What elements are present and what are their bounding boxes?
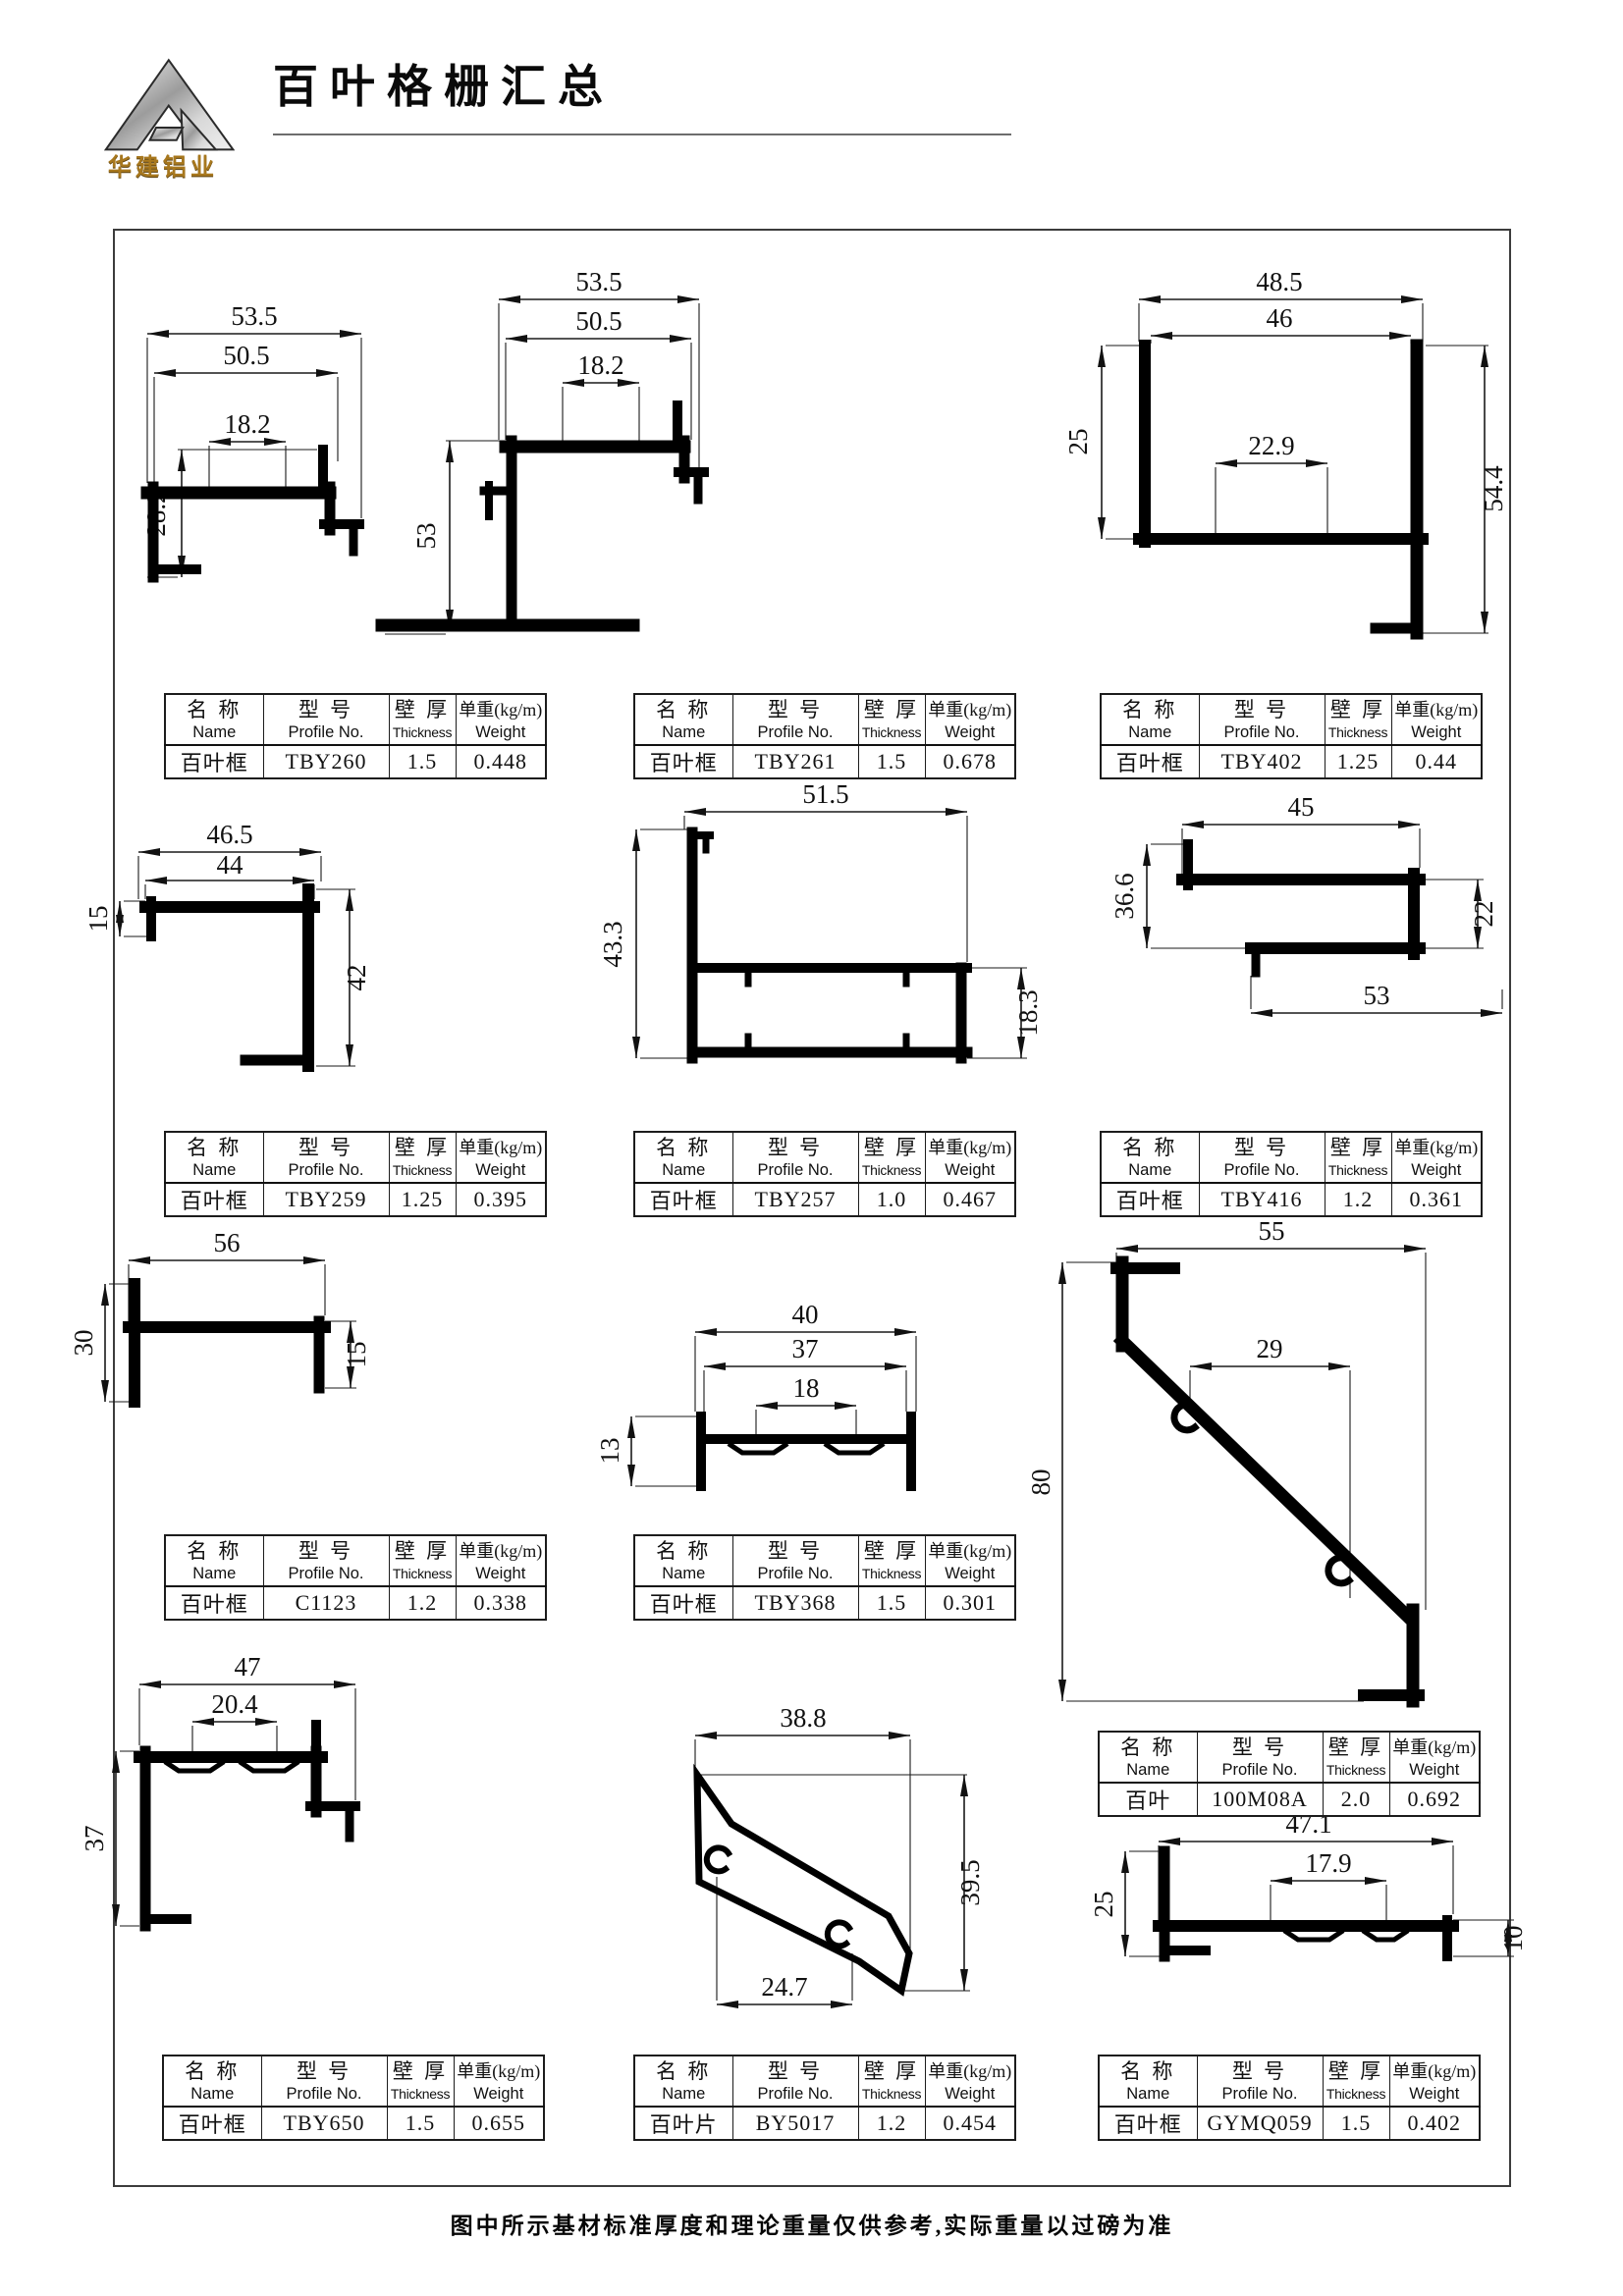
col-header-weight: 单重(kg/m)Weight	[1391, 1132, 1482, 1183]
drawing-sheet: { "header": { "logo_text": "华建铝业", "titl…	[0, 0, 1623, 2296]
dimension-label: 40	[792, 1300, 819, 1329]
profile-name: 百叶框	[165, 1586, 263, 1620]
dimension-label: 53	[411, 523, 441, 550]
col-header-thickness: 壁 厚Thickness	[1325, 1132, 1391, 1183]
col-header-thickness: 壁 厚Thickness	[1323, 1732, 1389, 1783]
col-header-name: 名 称Name	[165, 694, 263, 745]
dimension-label: 44	[217, 850, 244, 880]
company-name: 华建铝业	[75, 147, 251, 182]
profile-model: TBY650	[261, 2107, 387, 2140]
dimension-label: 50.5	[223, 341, 269, 370]
col-header-name: 名 称Name	[634, 2056, 732, 2107]
dimension-label: 48.5	[1256, 267, 1302, 296]
profile-table-TBY261: 名 称Name 型 号Profile No. 壁 厚Thickness 单重(k…	[633, 693, 1016, 779]
dimension-label: 46	[1267, 303, 1293, 333]
profile-name: 百叶片	[634, 2107, 732, 2140]
profile-model: TBY416	[1199, 1183, 1325, 1216]
dimension-label: 56	[214, 1228, 241, 1257]
profile-table-TBY259: 名 称Name 型 号Profile No. 壁 厚Thickness 单重(k…	[164, 1131, 547, 1217]
col-header-name: 名 称Name	[165, 1535, 263, 1586]
profile-name: 百叶框	[165, 1183, 263, 1216]
profile-weight: 0.361	[1391, 1183, 1482, 1216]
dimension-label: 17.9	[1305, 1848, 1351, 1878]
dimension-lines: 47.1 17.9 25 10	[1089, 1809, 1528, 1956]
profile-outline	[147, 450, 359, 577]
profile-table-C1123: 名 称Name 型 号Profile No. 壁 厚Thickness 单重(k…	[164, 1534, 547, 1621]
col-header-name: 名 称Name	[1101, 694, 1199, 745]
col-header-weight: 单重(kg/m)Weight	[456, 1535, 546, 1586]
profile-name: 百叶	[1099, 1783, 1197, 1816]
profile-drawing-TBY368: 40 37 18 13	[599, 1310, 972, 1502]
dimension-label: 13	[595, 1438, 624, 1465]
profile-model: BY5017	[732, 2107, 858, 2140]
col-header-weight: 单重(kg/m)Weight	[1389, 2056, 1480, 2107]
profile-drawing-TBY402: 48.5 46 25 22.9 54.4	[1060, 255, 1532, 648]
profile-table-100M08A: 名 称Name 型 号Profile No. 壁 厚Thickness 单重(k…	[1098, 1731, 1481, 1817]
profile-drawing-TBY261: 53.5 50.5 18.2 53	[378, 260, 1046, 653]
page-title: 百叶格栅汇总	[273, 51, 615, 116]
profile-thickness: 1.2	[858, 2107, 925, 2140]
profile-weight: 0.655	[454, 2107, 544, 2140]
profile-table-TBY260: 名 称Name 型 号Profile No. 壁 厚Thickness 单重(k…	[164, 693, 547, 779]
dimension-label: 18.2	[577, 350, 623, 380]
dimension-lines: 46.5 44 15 42	[83, 820, 371, 1066]
profile-outline	[1139, 346, 1423, 633]
col-header-name: 名 称Name	[1101, 1132, 1199, 1183]
col-header-name: 名 称Name	[634, 1132, 732, 1183]
profile-outline	[1182, 844, 1420, 973]
profile-drawing-BY5017: 38.8 39.5 24.7	[569, 1713, 992, 2037]
profile-weight: 0.692	[1389, 1783, 1480, 1816]
title-underline	[273, 133, 1011, 135]
dimension-label: 15	[83, 906, 113, 933]
col-header-name: 名 称Name	[1099, 1732, 1197, 1783]
profile-drawing-TBY259: 46.5 44 15 42	[93, 825, 398, 1119]
profile-outline	[382, 405, 704, 625]
col-header-model: 型 号Profile No.	[1199, 1132, 1325, 1183]
profile-drawing-TBY416: 45 36.6 22 53	[1060, 805, 1532, 1090]
profile-name: 百叶框	[634, 745, 732, 778]
profile-drawing-C1123: 56 30 15	[93, 1227, 407, 1453]
col-header-model: 型 号Profile No.	[263, 694, 389, 745]
col-header-weight: 单重(kg/m)Weight	[454, 2056, 544, 2107]
profile-name: 百叶框	[1099, 2107, 1197, 2140]
col-header-thickness: 壁 厚Thickness	[858, 1132, 925, 1183]
profile-weight: 0.338	[456, 1586, 546, 1620]
profile-thickness: 1.25	[1325, 745, 1391, 778]
dimension-label: 20.4	[211, 1689, 258, 1719]
profile-outline	[697, 1775, 909, 1991]
dimension-label: 50.5	[575, 306, 622, 336]
profile-name: 百叶框	[1101, 745, 1199, 778]
profile-drawing-GYMQ059: 47.1 17.9 25 10	[1060, 1821, 1532, 1998]
col-header-name: 名 称Name	[165, 1132, 263, 1183]
dimension-lines: 51.5 43.3 18.3	[598, 779, 1043, 1058]
dimension-label: 30	[69, 1330, 98, 1357]
profile-weight: 0.44	[1391, 745, 1482, 778]
col-header-model: 型 号Profile No.	[732, 1535, 858, 1586]
profile-drawing-100M08A: 55 29 80	[1046, 1227, 1527, 1718]
profile-model: 100M08A	[1197, 1783, 1323, 1816]
dimension-label: 18	[793, 1373, 820, 1403]
profile-weight: 0.402	[1389, 2107, 1480, 2140]
dimension-label: 22.9	[1248, 431, 1294, 460]
dimension-label: 24.7	[761, 1972, 807, 2002]
profile-name: 百叶框	[634, 1586, 732, 1620]
profile-model: TBY261	[732, 745, 858, 778]
profile-outline	[701, 1416, 911, 1486]
col-header-model: 型 号Profile No.	[1199, 694, 1325, 745]
profile-table-TBY257: 名 称Name 型 号Profile No. 壁 厚Thickness 单重(k…	[633, 1131, 1016, 1217]
dimension-label: 55	[1259, 1216, 1285, 1246]
col-header-weight: 单重(kg/m)Weight	[925, 1535, 1015, 1586]
col-header-model: 型 号Profile No.	[732, 1132, 858, 1183]
col-header-model: 型 号Profile No.	[263, 1132, 389, 1183]
profile-thickness: 1.5	[387, 2107, 454, 2140]
col-header-weight: 单重(kg/m)Weight	[456, 694, 546, 745]
col-header-thickness: 壁 厚Thickness	[389, 1535, 456, 1586]
profile-model: TBY402	[1199, 745, 1325, 778]
dimension-label: 18.3	[1013, 989, 1043, 1036]
profile-outline	[1116, 1262, 1419, 1701]
dimension-label: 53.5	[575, 267, 622, 296]
dimension-lines: 53.5 50.5 18.2 28.2	[141, 301, 361, 577]
profile-model: TBY260	[263, 745, 389, 778]
col-header-weight: 单重(kg/m)Weight	[456, 1132, 546, 1183]
profile-weight: 0.454	[925, 2107, 1015, 2140]
profile-name: 百叶框	[165, 745, 263, 778]
profile-drawing-TBY650: 47 20.4 37	[93, 1664, 417, 1949]
profile-model: GYMQ059	[1197, 2107, 1323, 2140]
dimension-label: 37	[80, 1826, 109, 1852]
dimension-label: 25	[1063, 429, 1093, 455]
col-header-model: 型 号Profile No.	[1197, 2056, 1323, 2107]
dimension-label: 39.5	[955, 1859, 985, 1905]
dimension-lines: 48.5 46 25 22.9 54.4	[1063, 267, 1508, 633]
profile-table-TBY650: 名 称Name 型 号Profile No. 壁 厚Thickness 单重(k…	[162, 2055, 545, 2141]
profile-weight: 0.395	[456, 1183, 546, 1216]
profile-thickness: 2.0	[1323, 1783, 1389, 1816]
col-header-model: 型 号Profile No.	[263, 1535, 389, 1586]
profile-outline	[145, 889, 314, 1066]
dimension-lines: 40 37 18 13	[595, 1300, 916, 1486]
dimension-label: 37	[792, 1334, 819, 1363]
dimension-label: 25	[1089, 1892, 1118, 1918]
col-header-weight: 单重(kg/m)Weight	[1391, 694, 1482, 745]
profile-name: 百叶框	[1101, 1183, 1199, 1216]
profile-weight: 0.448	[456, 745, 546, 778]
profile-table-TBY368: 名 称Name 型 号Profile No. 壁 厚Thickness 单重(k…	[633, 1534, 1016, 1621]
profile-name: 百叶框	[163, 2107, 261, 2140]
col-header-name: 名 称Name	[634, 1535, 732, 1586]
col-header-model: 型 号Profile No.	[732, 694, 858, 745]
col-header-thickness: 壁 厚Thickness	[858, 694, 925, 745]
col-header-weight: 单重(kg/m)Weight	[1389, 1732, 1480, 1783]
dimension-lines: 45 36.6 22 53	[1109, 792, 1502, 1013]
dimension-label: 15	[342, 1342, 371, 1368]
profile-model: C1123	[263, 1586, 389, 1620]
dimension-label: 45	[1288, 792, 1315, 822]
footer-note: 图中所示基材标准厚度和理论重量仅供参考,实际重量以过磅为准	[113, 2207, 1511, 2240]
dimension-label: 38.8	[780, 1703, 826, 1733]
col-header-thickness: 壁 厚Thickness	[387, 2056, 454, 2107]
dimension-lines: 38.8 39.5 24.7	[695, 1703, 985, 2004]
col-header-model: 型 号Profile No.	[732, 2056, 858, 2107]
dimension-label: 29	[1257, 1334, 1283, 1363]
dimension-label: 80	[1026, 1469, 1055, 1496]
profile-table-TBY416: 名 称Name 型 号Profile No. 壁 厚Thickness 单重(k…	[1100, 1131, 1483, 1217]
profile-model: TBY257	[732, 1183, 858, 1216]
dimension-lines: 55 29 80	[1026, 1216, 1426, 1701]
profile-name: 百叶框	[634, 1183, 732, 1216]
col-header-thickness: 壁 厚Thickness	[858, 1535, 925, 1586]
profile-thickness: 1.5	[858, 1586, 925, 1620]
dimension-label: 43.3	[598, 921, 627, 967]
col-header-thickness: 壁 厚Thickness	[389, 694, 456, 745]
col-header-weight: 单重(kg/m)Weight	[925, 2056, 1015, 2107]
dimension-label: 46.5	[206, 820, 252, 849]
profile-thickness: 1.2	[1325, 1183, 1391, 1216]
col-header-name: 名 称Name	[1099, 2056, 1197, 2107]
dimension-label: 54.4	[1479, 465, 1508, 512]
dimension-label: 51.5	[802, 779, 848, 809]
dimension-label: 42	[342, 965, 371, 991]
profile-thickness: 1.5	[1323, 2107, 1389, 2140]
profile-drawing-TBY257: 51.5 43.3 18.3	[569, 785, 1041, 1099]
profile-thickness: 1.5	[858, 745, 925, 778]
dimension-label: 10	[1498, 1926, 1528, 1952]
col-header-weight: 单重(kg/m)Weight	[925, 1132, 1015, 1183]
profile-model: TBY259	[263, 1183, 389, 1216]
company-logo	[101, 57, 235, 151]
profile-table-BY5017: 名 称Name 型 号Profile No. 壁 厚Thickness 单重(k…	[633, 2055, 1016, 2141]
col-header-thickness: 壁 厚Thickness	[1323, 2056, 1389, 2107]
col-header-thickness: 壁 厚Thickness	[389, 1132, 456, 1183]
profile-weight: 0.678	[925, 745, 1015, 778]
col-header-thickness: 壁 厚Thickness	[1325, 694, 1391, 745]
col-header-model: 型 号Profile No.	[261, 2056, 387, 2107]
dimension-label: 53.5	[231, 301, 277, 331]
col-header-name: 名 称Name	[163, 2056, 261, 2107]
col-header-model: 型 号Profile No.	[1197, 1732, 1323, 1783]
dimension-label: 22	[1469, 901, 1498, 928]
profile-thickness: 1.2	[389, 1586, 456, 1620]
profile-thickness: 1.0	[858, 1183, 925, 1216]
profile-outline	[129, 1284, 325, 1402]
logo-triangle-icon	[106, 60, 234, 149]
dimension-label: 18.2	[224, 409, 270, 439]
profile-thickness: 1.5	[389, 745, 456, 778]
dimension-label: 47	[235, 1652, 261, 1682]
dimension-lines: 56 30 15	[69, 1228, 371, 1402]
col-header-weight: 单重(kg/m)Weight	[925, 694, 1015, 745]
profile-table-TBY402: 名 称Name 型 号Profile No. 壁 厚Thickness 单重(k…	[1100, 693, 1483, 779]
col-header-thickness: 壁 厚Thickness	[858, 2056, 925, 2107]
profile-model: TBY368	[732, 1586, 858, 1620]
dimension-label: 53	[1364, 981, 1390, 1010]
profile-table-GYMQ059: 名 称Name 型 号Profile No. 壁 厚Thickness 单重(k…	[1098, 2055, 1481, 2141]
dimension-label: 36.6	[1109, 873, 1139, 919]
profile-thickness: 1.25	[389, 1183, 456, 1216]
profile-weight: 0.301	[925, 1586, 1015, 1620]
profile-outline	[139, 1725, 355, 1926]
profile-drawing-TBY260: 53.5 50.5 18.2 28.2	[93, 294, 398, 599]
profile-outline	[692, 832, 967, 1058]
profile-weight: 0.467	[925, 1183, 1015, 1216]
col-header-name: 名 称Name	[634, 694, 732, 745]
